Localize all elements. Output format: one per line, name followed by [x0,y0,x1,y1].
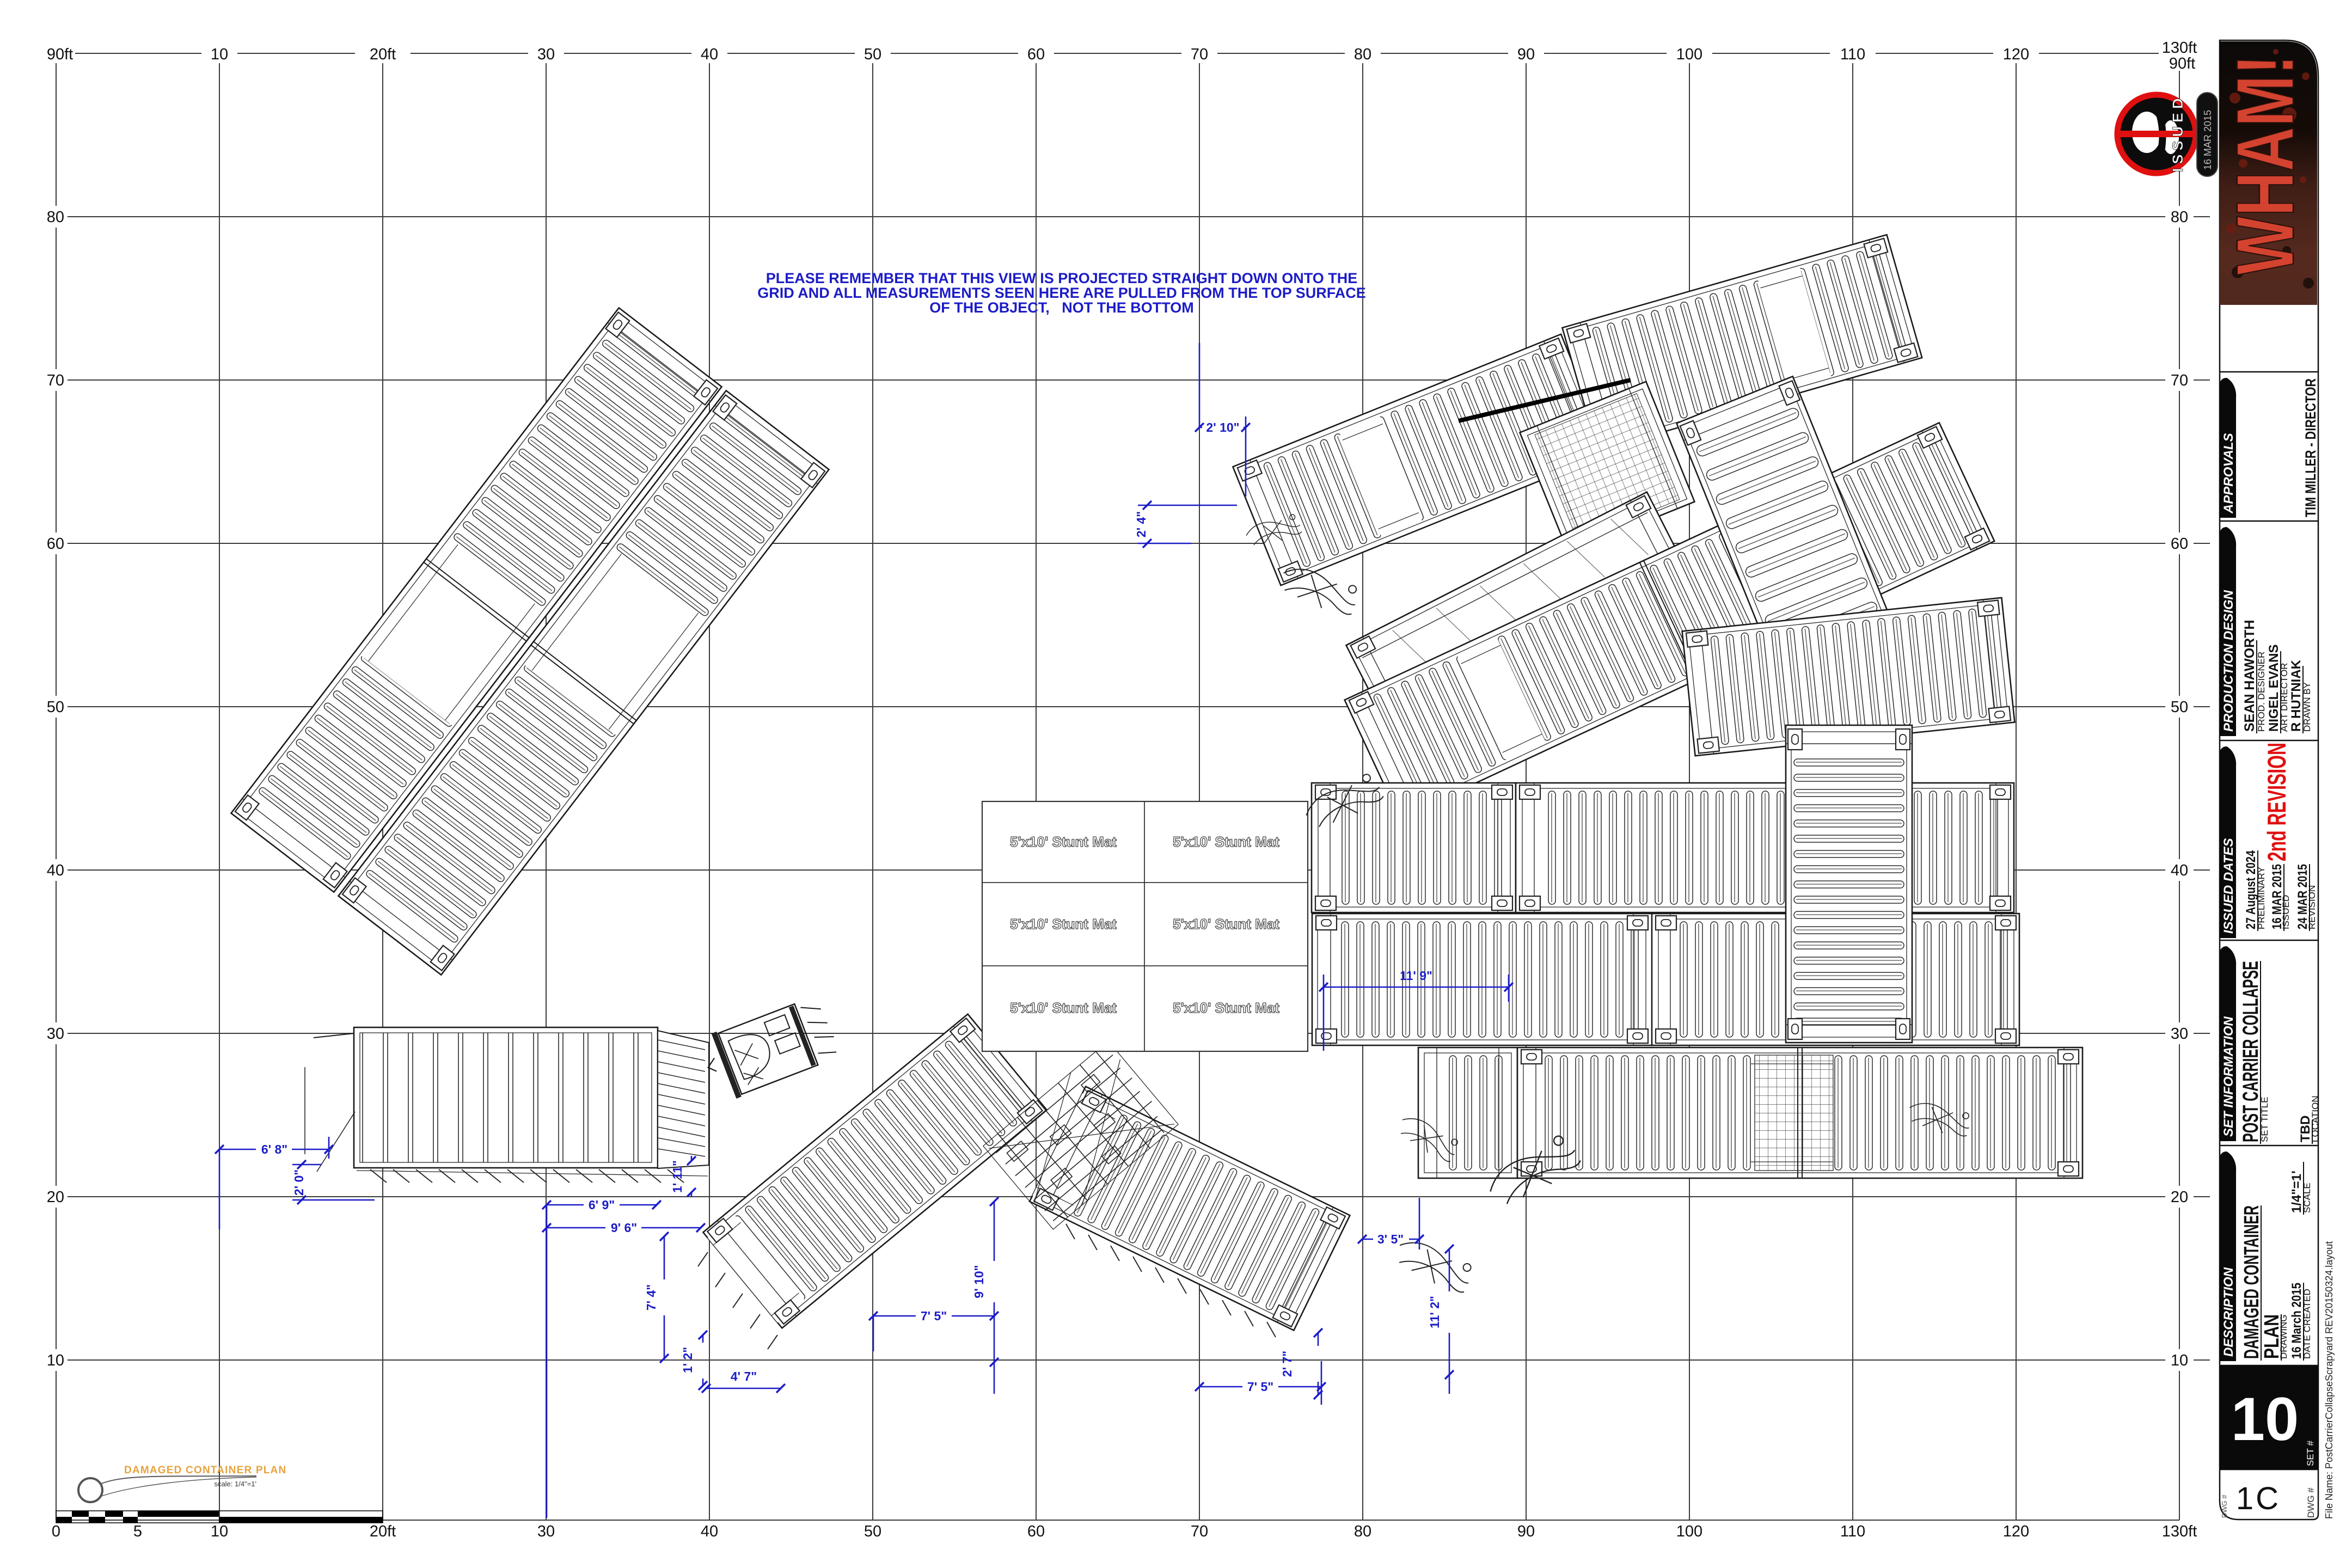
svg-text:REVISION: REVISION [2307,885,2317,929]
svg-text:30: 30 [537,1523,555,1540]
svg-text:100: 100 [1676,1523,1702,1540]
svg-text:50: 50 [47,699,64,716]
svg-text:PROD. DESIGNER: PROD. DESIGNER [2256,652,2267,732]
svg-text:GRID AND ALL MEASUREMENTS SEEN: GRID AND ALL MEASUREMENTS SEEN HERE ARE … [757,285,1366,301]
svg-text:90: 90 [1517,46,1535,63]
svg-text:100: 100 [1676,46,1702,63]
svg-text:90ft: 90ft [47,46,73,63]
svg-text:PLEASE REMEMBER THAT THIS VIEW: PLEASE REMEMBER THAT THIS VIEW IS PROJEC… [766,270,1358,286]
svg-text:1' 11": 1' 11" [670,1160,684,1193]
svg-text:scale: 1/4"=1': scale: 1/4"=1' [214,1480,256,1488]
svg-text:2' 10": 2' 10" [1206,420,1239,434]
svg-text:10: 10 [211,1523,228,1540]
svg-text:5'x10' Stunt Mat: 5'x10' Stunt Mat [1010,834,1117,850]
svg-text:ISSUED: ISSUED [2281,895,2291,929]
svg-text:DAMAGED CONTAINER: DAMAGED CONTAINER [2240,1205,2263,1359]
svg-text:10: 10 [211,46,228,63]
svg-text:30: 30 [537,46,555,63]
svg-text:30: 30 [47,1025,64,1043]
svg-text:70: 70 [1191,46,1208,63]
svg-text:9' 6": 9' 6" [611,1221,637,1235]
svg-text:0: 0 [52,1523,60,1540]
svg-text:2' 7": 2' 7" [1280,1351,1294,1377]
svg-text:70: 70 [2171,372,2188,389]
svg-text:130ft: 130ft [2162,39,2197,57]
svg-text:DESCRIPTION: DESCRIPTION [2221,1267,2236,1357]
svg-text:20: 20 [2171,1189,2188,1206]
svg-text:R HUTNIAK: R HUTNIAK [2289,659,2304,732]
svg-text:WHAM!: WHAM! [2219,54,2311,275]
svg-text:ISSUED DATES: ISSUED DATES [2221,838,2236,934]
svg-text:7' 5": 7' 5" [921,1309,947,1323]
svg-text:110: 110 [1840,1523,1865,1540]
svg-text:40: 40 [701,1523,718,1540]
svg-text:DAMAGED CONTAINER PLAN: DAMAGED CONTAINER PLAN [124,1465,286,1476]
svg-text:7' 5": 7' 5" [1247,1380,1273,1394]
svg-text:5'x10' Stunt Mat: 5'x10' Stunt Mat [1010,916,1117,932]
svg-text:5: 5 [133,1523,142,1540]
svg-text:7' 4": 7' 4" [644,1284,658,1310]
svg-text:5'x10' Stunt Mat: 5'x10' Stunt Mat [1010,1000,1117,1016]
svg-text:30: 30 [2171,1025,2188,1043]
svg-text:90: 90 [1517,1523,1535,1540]
svg-text:DWG #: DWG # [2220,1494,2228,1518]
svg-text:80: 80 [2171,209,2188,226]
svg-text:5'x10' Stunt Mat: 5'x10' Stunt Mat [1173,1000,1279,1016]
svg-text:PRODUCTION DESIGN: PRODUCTION DESIGN [2221,590,2236,732]
svg-text:PRELIMINARY: PRELIMINARY [2256,867,2267,929]
svg-text:SET #: SET # [2305,1441,2316,1466]
svg-text:40: 40 [2171,862,2188,879]
svg-text:SET INFORMATION: SET INFORMATION [2221,1016,2236,1137]
svg-text:20: 20 [47,1189,64,1206]
svg-text:10: 10 [2171,1352,2188,1369]
svg-text:120: 120 [2003,46,2029,63]
svg-text:130ft: 130ft [2162,1523,2197,1540]
svg-text:5'x10' Stunt Mat: 5'x10' Stunt Mat [1173,916,1279,932]
svg-text:OF THE OBJECT, NOT THE BOTTO: OF THE OBJECT, NOT THE BOTTOM [929,299,1194,316]
svg-text:9' 10": 9' 10" [972,1265,986,1298]
svg-text:6' 9": 6' 9" [589,1198,615,1212]
svg-text:DRAWING: DRAWING [2278,1314,2289,1359]
svg-text:80: 80 [1354,1523,1371,1540]
svg-text:1C: 1C [2236,1481,2281,1516]
svg-text:10: 10 [2231,1385,2299,1453]
svg-text:90ft: 90ft [2169,55,2195,72]
svg-text:DATE CREATED: DATE CREATED [2302,1289,2312,1359]
svg-text:70: 70 [1191,1523,1208,1540]
svg-text:2nd REVISION: 2nd REVISION [2262,743,2291,861]
svg-text:60: 60 [1027,46,1045,63]
svg-text:DWG #: DWG # [2306,1487,2316,1518]
svg-text:1' 2": 1' 2" [681,1347,695,1373]
svg-text:ART DIRECTOR: ART DIRECTOR [2279,663,2289,732]
svg-text:SEAN HAWORTH: SEAN HAWORTH [2242,620,2257,732]
svg-text:SCALE: SCALE [2302,1183,2312,1213]
svg-text:16 MAR 2015: 16 MAR 2015 [2202,110,2213,170]
svg-text:DRAWN BY: DRAWN BY [2302,682,2312,732]
svg-text:APPROVALS: APPROVALS [2221,433,2236,514]
svg-text:50: 50 [864,46,881,63]
svg-text:60: 60 [1027,1523,1045,1540]
svg-text:SET TITLE: SET TITLE [2259,1097,2270,1142]
svg-text:6' 8": 6' 8" [261,1142,287,1156]
svg-text:60: 60 [47,535,64,553]
svg-text:11' 2": 11' 2" [1428,1296,1442,1328]
svg-text:LOCATION: LOCATION [2310,1095,2320,1142]
svg-text:2' 4": 2' 4" [1134,511,1148,537]
svg-text:ISSUED: ISSUED [2170,94,2186,172]
svg-text:80: 80 [47,209,64,226]
svg-text:10: 10 [47,1352,64,1369]
svg-text:50: 50 [2171,699,2188,716]
svg-text:4' 7": 4' 7" [731,1369,757,1383]
svg-text:110: 110 [1840,46,1865,63]
svg-text:120: 120 [2003,1523,2029,1540]
svg-text:5'x10' Stunt Mat: 5'x10' Stunt Mat [1173,834,1279,850]
svg-text:20ft: 20ft [370,46,396,63]
svg-text:2' 0": 2' 0" [292,1169,306,1196]
svg-text:3' 5": 3' 5" [1377,1232,1404,1246]
svg-text:50: 50 [864,1523,881,1540]
svg-text:TIM MILLER - DIRECTOR: TIM MILLER - DIRECTOR [2302,378,2319,517]
svg-text:20ft: 20ft [370,1523,396,1540]
svg-text:60: 60 [2171,535,2188,553]
svg-text:40: 40 [701,46,718,63]
svg-text:File Name: PostCarrierCollapse: File Name: PostCarrierCollapseScrapyard … [2324,1241,2335,1519]
svg-text:70: 70 [47,372,64,389]
svg-text:80: 80 [1354,46,1371,63]
svg-text:11' 9": 11' 9" [1400,969,1432,983]
svg-text:40: 40 [47,862,64,879]
